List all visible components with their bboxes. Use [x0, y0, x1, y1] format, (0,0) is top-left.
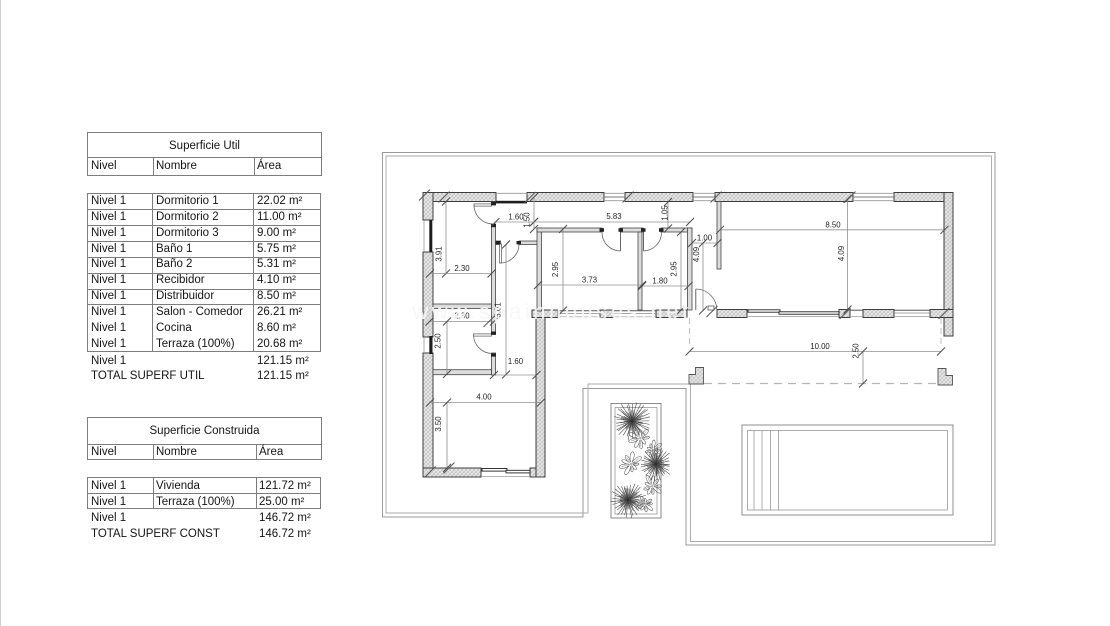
- svg-text:2.95: 2.95: [551, 261, 560, 277]
- svg-text:1.80: 1.80: [652, 276, 668, 285]
- svg-text:2.50: 2.50: [852, 343, 861, 359]
- svg-text:3.91: 3.91: [435, 246, 444, 261]
- svg-text:2.50: 2.50: [434, 333, 443, 349]
- svg-text:8.50: 8.50: [825, 220, 841, 229]
- svg-text:10.00: 10.00: [810, 342, 830, 351]
- svg-text:4.00: 4.00: [476, 392, 492, 401]
- svg-text:3.73: 3.73: [582, 275, 597, 284]
- svg-text:5.83: 5.83: [606, 212, 621, 221]
- svg-text:4.09: 4.09: [837, 246, 846, 261]
- svg-text:2.95: 2.95: [670, 261, 679, 277]
- svg-text:2.30: 2.30: [454, 264, 470, 273]
- svg-text:1.60: 1.60: [508, 357, 524, 366]
- svg-text:1.50: 1.50: [523, 212, 532, 228]
- svg-text:4.09: 4.09: [692, 247, 701, 262]
- svg-text:3.50: 3.50: [434, 416, 443, 432]
- svg-text:1.05: 1.05: [661, 205, 670, 221]
- svg-text:www.spainhouses.net: www.spainhouses.net: [411, 299, 691, 324]
